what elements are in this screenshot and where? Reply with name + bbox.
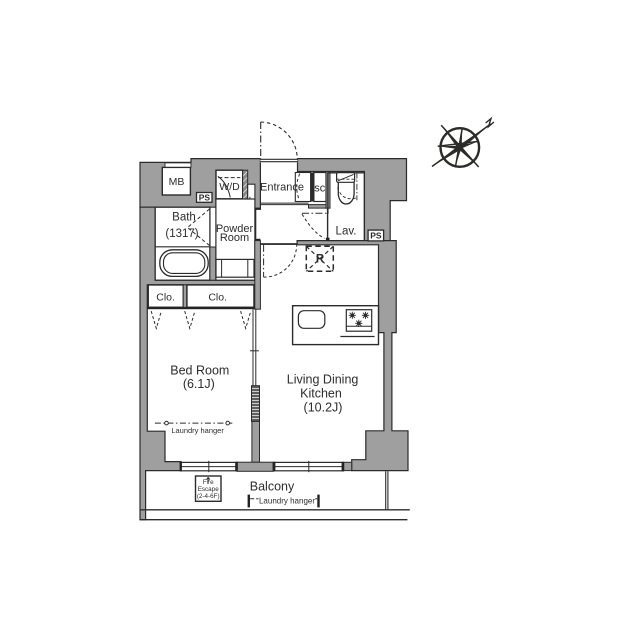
svg-text:(10.2J): (10.2J) [304, 401, 343, 415]
svg-text:(1317): (1317) [165, 228, 198, 240]
svg-text:Lav.: Lav. [336, 225, 357, 237]
svg-text:Fire: Fire [203, 479, 214, 486]
svg-text:Entrance: Entrance [260, 181, 304, 193]
svg-text:R: R [316, 254, 325, 266]
svg-text:Laundry hanger: Laundry hanger [259, 497, 315, 506]
svg-text:Room: Room [220, 232, 249, 244]
svg-text:PS: PS [370, 231, 382, 241]
svg-text:Bath: Bath [172, 212, 196, 224]
svg-text:Laundry hanger: Laundry hanger [171, 426, 224, 435]
svg-text:W/D: W/D [219, 181, 240, 193]
svg-text:Kitchen: Kitchen [300, 386, 342, 400]
svg-text:MB: MB [169, 176, 185, 188]
svg-text:(2-4-6F): (2-4-6F) [197, 493, 220, 500]
svg-text:PS: PS [199, 192, 211, 202]
svg-text:Clo.: Clo. [156, 292, 175, 304]
svg-text:Clo.: Clo. [208, 292, 227, 304]
svg-text:Escape: Escape [198, 486, 220, 493]
svg-text:(6.1J): (6.1J) [183, 377, 215, 391]
svg-text:sc: sc [314, 182, 326, 194]
svg-text:Bed Room: Bed Room [170, 363, 229, 377]
svg-text:Living Dining: Living Dining [287, 372, 359, 386]
svg-text:Balcony: Balcony [250, 479, 295, 493]
